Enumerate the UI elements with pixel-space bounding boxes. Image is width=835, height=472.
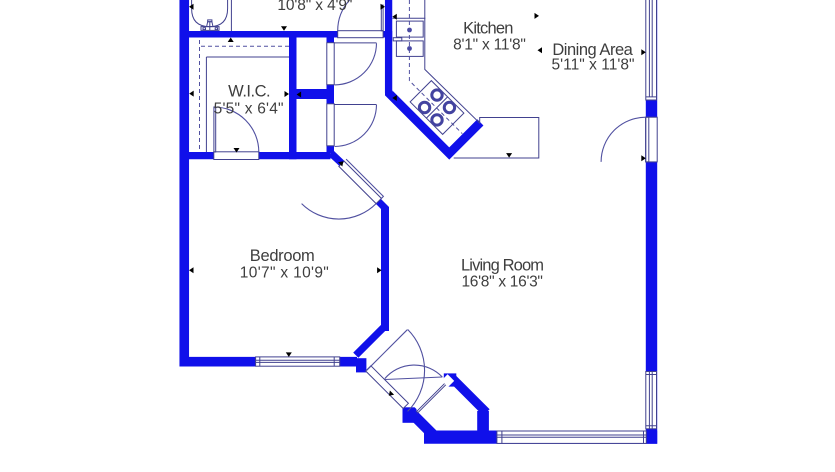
svg-text:W.I.C.: W.I.C. — [228, 82, 271, 100]
svg-text:Bedroom: Bedroom — [250, 247, 315, 265]
svg-text:16'8" x 16'3": 16'8" x 16'3" — [461, 274, 543, 291]
svg-text:Kitchen: Kitchen — [463, 20, 513, 38]
svg-text:5'5" x 6'4": 5'5" x 6'4" — [214, 101, 284, 118]
svg-text:8'1" x 11'8": 8'1" x 11'8" — [453, 37, 526, 54]
svg-text:10'8" x 4'9": 10'8" x 4'9" — [277, 0, 352, 14]
svg-text:5'11" x 11'8": 5'11" x 11'8" — [552, 56, 635, 73]
svg-text:10'7" x 10'9": 10'7" x 10'9" — [240, 264, 329, 281]
svg-text:Living Room: Living Room — [461, 256, 544, 274]
